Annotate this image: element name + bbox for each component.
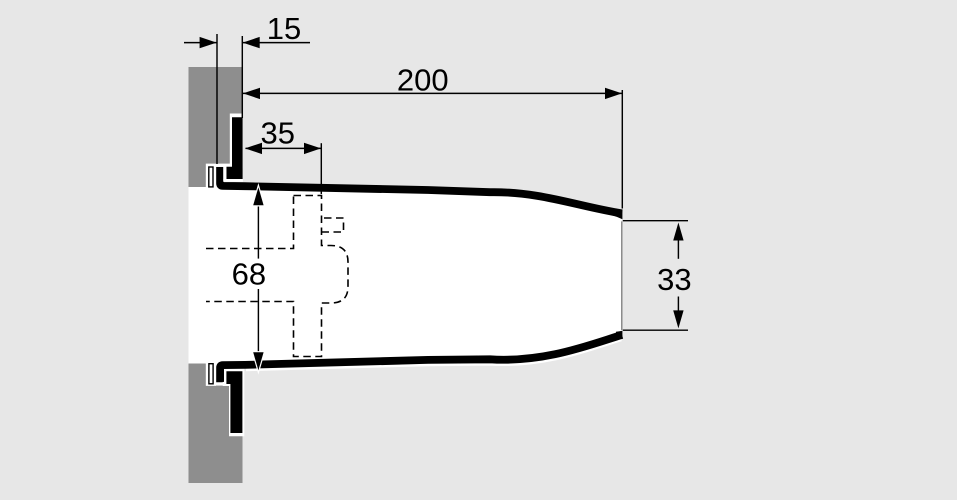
svg-text:68: 68 <box>232 256 266 291</box>
svg-text:200: 200 <box>397 63 449 98</box>
svg-text:35: 35 <box>260 116 294 151</box>
svg-text:33: 33 <box>657 262 691 297</box>
svg-text:15: 15 <box>267 11 301 46</box>
